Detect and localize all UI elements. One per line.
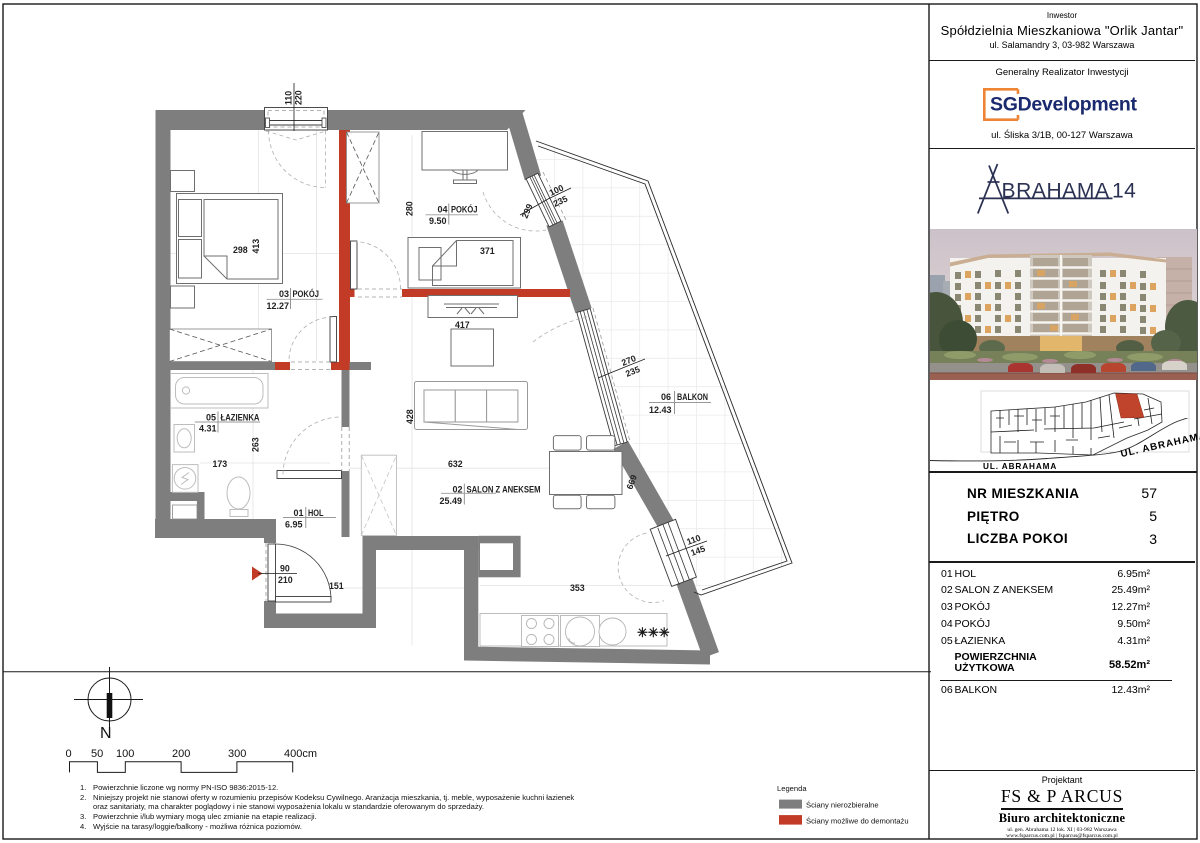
svg-text:SGDevelopment: SGDevelopment [990, 94, 1138, 116]
svg-text:BALKON: BALKON [677, 392, 708, 402]
svg-text:353: 353 [570, 583, 585, 593]
svg-text:413: 413 [251, 239, 261, 254]
svg-text:03: 03 [279, 289, 289, 299]
svg-text:1.: 1. [80, 783, 86, 792]
svg-text:428: 428 [405, 409, 415, 424]
svg-text:9.50: 9.50 [429, 216, 447, 226]
svg-text:Wyjście na tarasy/loggie/balko: Wyjście na tarasy/loggie/balkony - możli… [93, 822, 302, 831]
svg-text:173: 173 [213, 459, 228, 469]
svg-text:6.95: 6.95 [285, 520, 303, 530]
svg-text:2.: 2. [80, 793, 86, 802]
svg-text:220: 220 [294, 90, 304, 105]
svg-text:3.: 3. [80, 812, 86, 821]
svg-text:110: 110 [284, 91, 294, 105]
svg-text:400cm: 400cm [284, 748, 317, 760]
svg-text:Ściany nierozbieralne: Ściany nierozbieralne [806, 801, 879, 810]
svg-text:04: 04 [438, 205, 448, 215]
svg-text:100: 100 [116, 748, 134, 760]
svg-text:Powierzchnie i/lub wymiary mog: Powierzchnie i/lub wymiary mogą ulec zmi… [93, 812, 317, 821]
svg-text:14: 14 [1112, 180, 1136, 203]
svg-text:298: 298 [233, 245, 248, 255]
svg-text:50: 50 [91, 748, 103, 760]
svg-text:POKÓJ: POKÓJ [293, 288, 320, 299]
svg-text:0: 0 [66, 748, 72, 760]
svg-text:263: 263 [251, 437, 261, 452]
svg-text:4.31: 4.31 [199, 424, 217, 434]
svg-text:25.49: 25.49 [440, 496, 463, 506]
svg-text:05: 05 [206, 413, 216, 423]
svg-text:280: 280 [405, 201, 415, 216]
svg-text:Niniejszy projekt nie stanowi: Niniejszy projekt nie stanowi oferty w r… [93, 793, 574, 802]
svg-text:Powierzchnie liczone wg normy: Powierzchnie liczone wg normy PN-ISO 983… [93, 783, 278, 792]
svg-text:210: 210 [278, 575, 293, 585]
svg-text:200: 200 [172, 748, 190, 760]
svg-text:POKÓJ: POKÓJ [451, 204, 478, 215]
svg-text:06: 06 [661, 392, 671, 402]
svg-text:Legenda: Legenda [777, 784, 807, 793]
svg-text:300: 300 [228, 748, 246, 760]
svg-text:HOL: HOL [308, 508, 324, 518]
svg-text:oraz sanitariaty, ma charakter: oraz sanitariaty, ma charakter poglądowy… [93, 802, 484, 811]
svg-text:299: 299 [520, 202, 535, 220]
svg-text:01: 01 [294, 508, 304, 518]
svg-text:632: 632 [448, 459, 463, 469]
svg-text:4.: 4. [80, 822, 86, 831]
svg-text:✳✳✳: ✳✳✳ [637, 625, 670, 640]
svg-text:12.27: 12.27 [267, 301, 290, 311]
svg-text:N: N [100, 725, 112, 742]
svg-text:90: 90 [280, 564, 290, 574]
svg-text:12.43: 12.43 [649, 405, 672, 415]
svg-text:151: 151 [329, 581, 344, 591]
svg-text:ŁAZIENKA: ŁAZIENKA [221, 413, 260, 423]
svg-text:371: 371 [480, 246, 495, 256]
svg-text:Ściany możliwe do demontażu: Ściany możliwe do demontażu [806, 817, 909, 826]
